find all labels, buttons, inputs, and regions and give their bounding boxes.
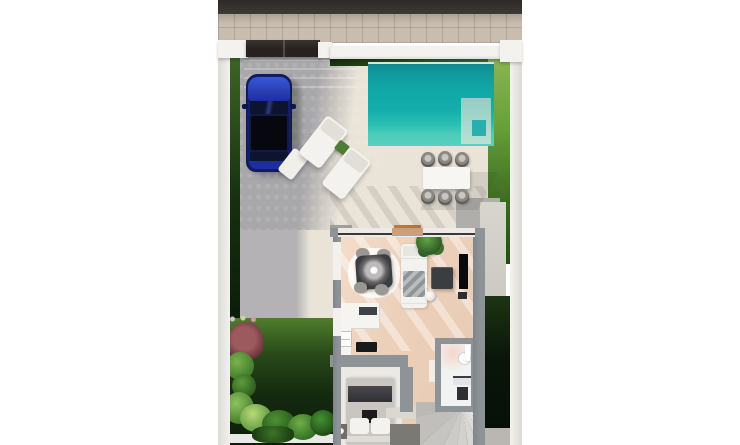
outdoor-chair [438, 151, 452, 166]
perimeter-wall-corner [218, 40, 248, 58]
pool-ladder [472, 120, 486, 136]
outdoor-chair [438, 190, 452, 205]
outdoor-dining-table [423, 167, 470, 189]
bed-footboard [346, 436, 394, 442]
under-stair-storage [390, 424, 420, 445]
floorplan-render-canvas [0, 0, 740, 445]
perimeter-wall-east [510, 40, 522, 445]
gate-seam [283, 40, 285, 57]
perimeter-wall-north [330, 46, 504, 59]
house-wall-east [473, 228, 485, 445]
outdoor-chair [421, 189, 435, 204]
floor-lamp [425, 291, 435, 301]
garden-bush [252, 426, 294, 443]
bathroom [435, 338, 477, 412]
cooktop [356, 342, 377, 352]
window-west-2 [333, 308, 341, 336]
tv-screen [459, 254, 468, 289]
media-unit [458, 292, 467, 299]
road [218, 0, 522, 14]
car-windshield [250, 101, 288, 114]
window-west-1 [333, 242, 341, 280]
outdoor-chair [455, 189, 469, 204]
pillow [350, 418, 369, 434]
car-roof [249, 114, 289, 152]
bathroom-vanity [453, 376, 471, 385]
car-mirror-left [242, 104, 248, 109]
car-hood [248, 77, 290, 101]
bed-blanket [348, 386, 392, 402]
car-mirror-right [290, 104, 296, 109]
car-rear-window [250, 152, 288, 161]
wall-corner [330, 228, 338, 237]
villa-plot-scene [218, 0, 522, 445]
sidewalk [218, 14, 522, 43]
sofa-throw-blanket [403, 271, 425, 297]
swimming-pool [368, 62, 494, 146]
outdoor-chair [455, 152, 469, 167]
perimeter-wall-west [218, 40, 230, 445]
coffee-table [431, 267, 453, 289]
dining-chair [375, 284, 388, 295]
driveway-gate [246, 40, 320, 57]
interior-wall-stub [400, 367, 413, 412]
bathroom-cabinet [457, 387, 468, 400]
dining-chair [354, 282, 367, 293]
house [330, 228, 485, 445]
perimeter-pillar-ne [500, 40, 522, 62]
interior-wall [330, 355, 408, 367]
outdoor-chair [421, 152, 435, 167]
wall-corner [475, 228, 485, 237]
entry-door [392, 228, 423, 236]
towel-rail [465, 345, 470, 361]
pillow [371, 418, 390, 434]
kitchen-appliance [359, 307, 377, 315]
bathroom-doorway [429, 360, 435, 382]
